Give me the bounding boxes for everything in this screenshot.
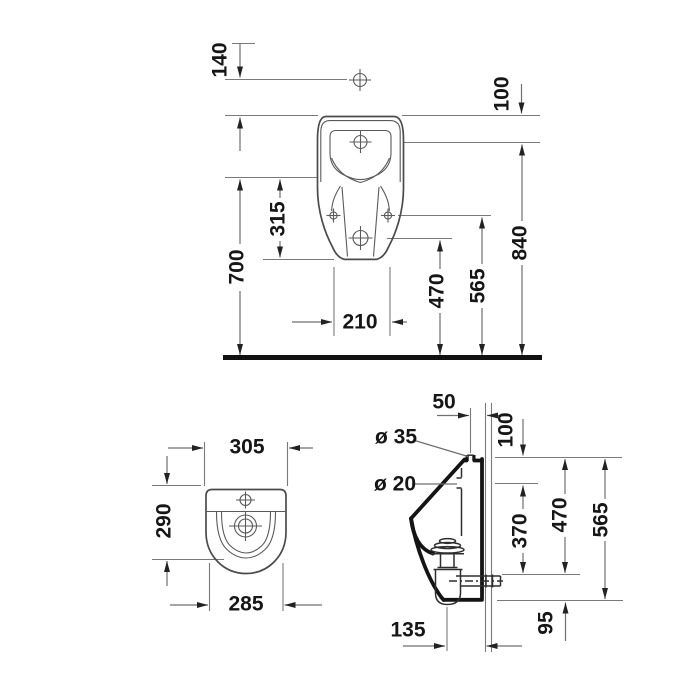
plan-drain-icon — [229, 511, 262, 541]
dim-label-50: 50 — [432, 391, 455, 414]
front-dimension-lines — [240, 44, 522, 355]
urinal-side-profile — [411, 455, 482, 600]
dim-label-100-top: 100 — [491, 76, 514, 111]
wall-section — [486, 403, 492, 652]
dim-label-840: 840 — [509, 225, 532, 260]
dim-label-470-side: 470 — [549, 497, 572, 532]
drawing-canvas: 140 100 700 315 210 470 565 840 — [0, 0, 700, 700]
side-view: 50 ø 35 ø 20 100 370 470 565 95 135 — [374, 391, 623, 653]
dim-label-210: 210 — [342, 311, 377, 334]
side-hole-left-icon — [327, 209, 341, 223]
dia-label-20: ø 20 — [374, 473, 416, 496]
dim-label-140: 140 — [209, 42, 232, 77]
dim-label-135: 135 — [390, 619, 425, 642]
dim-label-470-front: 470 — [426, 273, 449, 308]
outlet-crosshair-icon — [349, 226, 373, 250]
siphon-trap — [431, 539, 503, 605]
dim-label-565-side: 565 — [590, 502, 613, 537]
dim-label-700: 700 — [226, 249, 249, 284]
supply-crosshair-icon — [349, 69, 371, 91]
dia-label-35: ø 35 — [375, 426, 417, 449]
front-view: 140 100 700 315 210 470 565 840 — [209, 42, 543, 357]
dim-label-285: 285 — [228, 593, 263, 616]
dim-label-95: 95 — [535, 611, 558, 635]
dim-label-290: 290 — [153, 503, 176, 538]
rim-hole-crosshair-icon — [350, 131, 372, 153]
plan-inlet-crosshair-icon — [236, 492, 255, 509]
dim-label-315: 315 — [267, 201, 290, 236]
dim-label-305: 305 — [229, 436, 264, 459]
top-view: 305 290 285 — [152, 436, 322, 616]
side-hole-right-icon — [381, 209, 395, 223]
dim-label-100-side: 100 — [495, 412, 518, 447]
dim-label-370: 370 — [509, 513, 532, 548]
side-dimension-lines — [403, 416, 605, 647]
technical-drawing-urinal: 140 100 700 315 210 470 565 840 — [0, 0, 700, 700]
dim-label-565-front: 565 — [467, 268, 490, 303]
